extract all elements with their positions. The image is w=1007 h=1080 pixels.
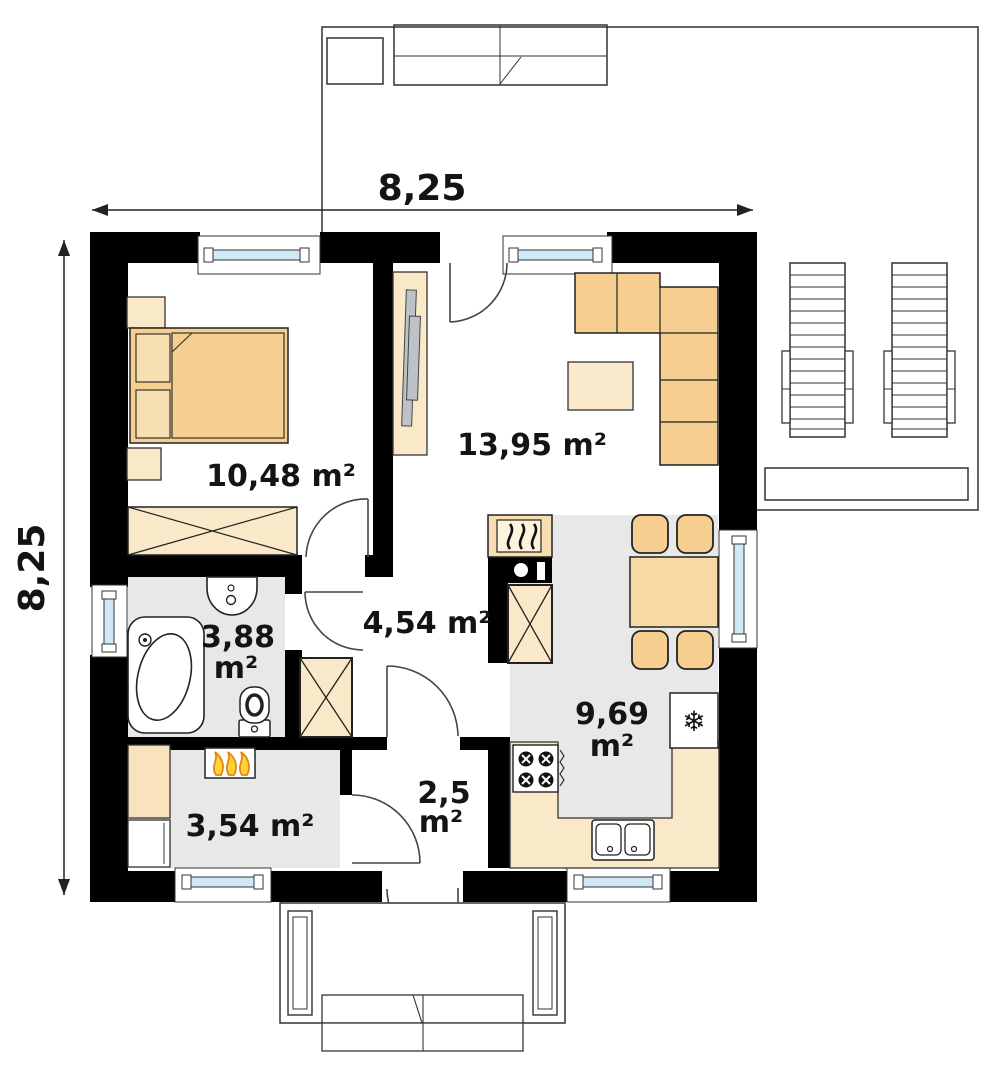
kitchen-sink: [592, 820, 654, 860]
floor-plan-drawing: 8,25 8,25: [0, 0, 1007, 1080]
chair: [677, 631, 713, 669]
fridge: ❄: [670, 693, 718, 748]
terrace-steps-diagonal: [500, 57, 521, 84]
chair: [677, 515, 713, 553]
wall: [365, 555, 393, 577]
chimney-flue-icon: [514, 563, 528, 577]
arrow-down-icon: [58, 879, 70, 895]
chair: [632, 631, 668, 669]
bedroom-area-label: 10,48 m²: [206, 459, 356, 494]
garden-bench: [765, 468, 968, 500]
wall: [719, 232, 757, 532]
cooktop: [513, 745, 564, 792]
dining-table: [630, 557, 718, 627]
wall: [719, 648, 757, 902]
utility-area-label: 3,54 m²: [186, 809, 315, 844]
bathroom-area-unit: m²: [214, 651, 258, 686]
wall: [271, 871, 382, 902]
toilet: [239, 687, 270, 737]
chimney-vent-icon: [537, 562, 545, 580]
bathroom-window: [92, 585, 127, 657]
wall: [463, 871, 567, 902]
bedroom-window: [198, 236, 320, 274]
hall-area-label: 4,54 m²: [363, 606, 492, 641]
chair: [632, 515, 668, 553]
kitchen-side-window: [719, 530, 757, 648]
floor-plan-page: 8,25 8,25: [0, 0, 1007, 1080]
arrow-up-icon: [58, 240, 70, 256]
bathtub: [128, 617, 204, 733]
dimension-label-top: 8,25: [378, 168, 467, 209]
storage-cabinet: [128, 745, 170, 818]
entry-steps: [322, 995, 523, 1051]
utility-window: [175, 868, 271, 902]
kitchen-area-value: 9,69: [575, 697, 649, 732]
wall: [90, 655, 128, 902]
wall: [90, 871, 175, 902]
sun-lounger: [782, 263, 853, 437]
fireplace: [488, 515, 552, 557]
kitchen-bottom-window: [567, 868, 670, 902]
living-room-window: [503, 236, 612, 274]
porch-column-inner: [293, 917, 307, 1009]
vent-shaft-hall: [300, 658, 352, 737]
dimension-label-left: 8,25: [12, 524, 53, 613]
bathroom-area-value: 3,88: [201, 620, 275, 655]
living-room-area-label: 13,95 m²: [457, 428, 607, 463]
arrow-left-icon: [92, 204, 108, 216]
pillow: [136, 334, 170, 382]
nightstand: [127, 448, 161, 480]
wall: [352, 737, 387, 750]
snowflake-icon: ❄: [682, 707, 705, 738]
boiler: [205, 748, 255, 778]
nightstand: [127, 297, 165, 328]
terrace-square-structure: [327, 38, 383, 84]
bed-mattress: [172, 333, 284, 438]
wall: [320, 232, 440, 263]
kitchen-area-unit: m²: [590, 729, 634, 764]
vent-shaft-kitchen: [508, 585, 552, 663]
wall: [90, 232, 128, 587]
wall: [488, 737, 510, 868]
coffee-table: [568, 362, 633, 410]
wardrobe: [128, 507, 297, 555]
porch-column-inner: [538, 917, 552, 1009]
wall: [128, 555, 302, 577]
wall: [285, 577, 302, 594]
arrow-right-icon: [737, 204, 753, 216]
pillow: [136, 390, 170, 438]
sun-lounger: [884, 263, 955, 437]
wall: [340, 737, 352, 795]
vestibule-area-unit: m²: [419, 805, 463, 840]
wall: [373, 263, 393, 577]
porch: [280, 903, 565, 1051]
